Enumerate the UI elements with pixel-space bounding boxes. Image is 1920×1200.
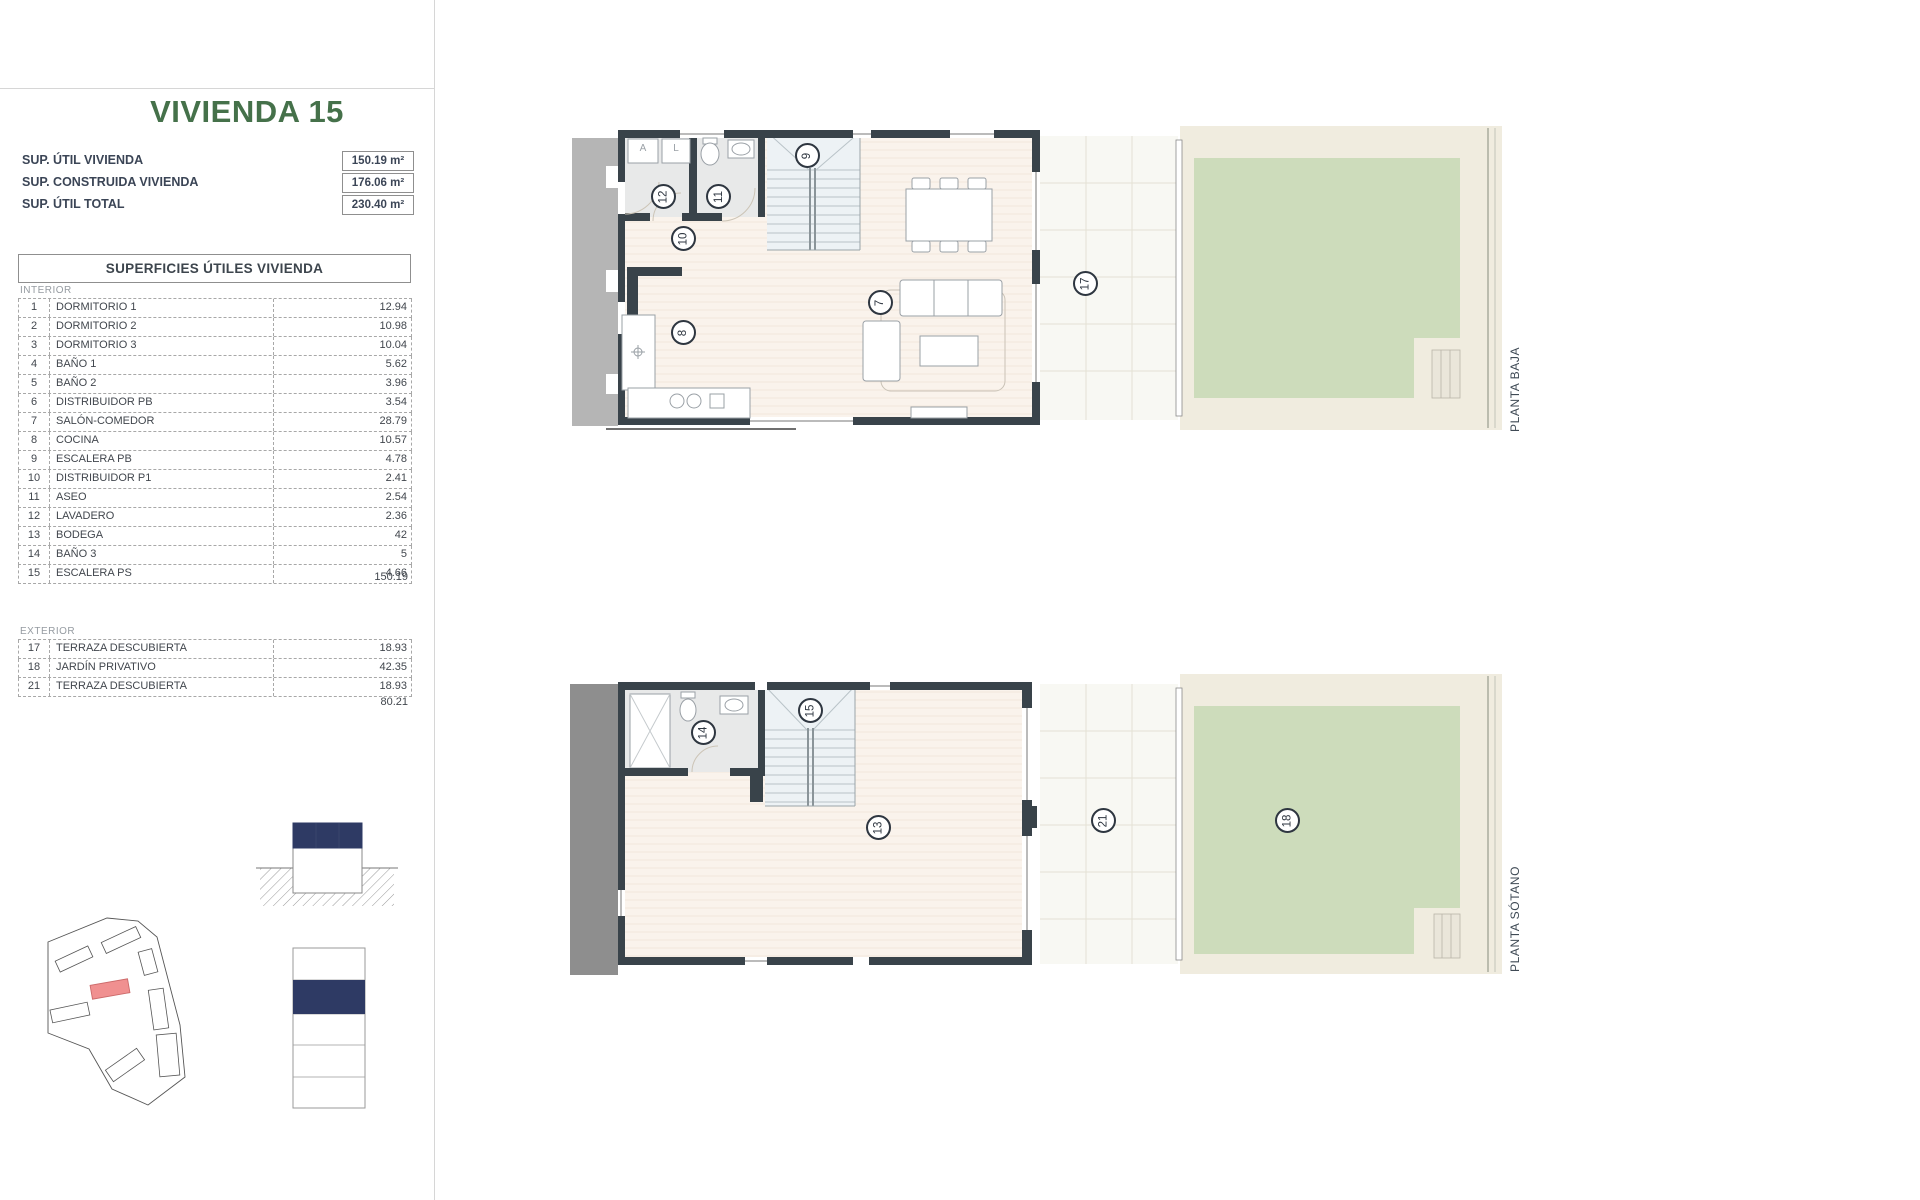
row-num: 6: [19, 394, 49, 412]
row-num: 12: [19, 508, 49, 526]
planta-sotano-label: PLANTA SÓTANO: [1508, 868, 1522, 972]
row-name: BODEGA: [49, 527, 273, 545]
planta-sotano-drawing: [570, 672, 1510, 975]
row-name: DISTRIBUIDOR PB: [49, 394, 273, 412]
exterior-section-label: EXTERIOR: [20, 626, 75, 637]
row-value: 3.96: [273, 375, 411, 393]
summary-row: SUP. ÚTIL VIVIENDA 150.19 m²: [22, 151, 414, 171]
summary-value: 230.40 m²: [342, 195, 414, 215]
room-marker: 17: [1073, 271, 1098, 296]
room-marker: 10: [671, 226, 696, 251]
row-name: DORMITORIO 2: [49, 318, 273, 336]
header-rule: [0, 88, 435, 89]
table-row: 17TERRAZA DESCUBIERTA18.93: [18, 640, 412, 659]
row-name: SALÓN-COMEDOR: [49, 413, 273, 431]
row-value: 2.36: [273, 508, 411, 526]
dining-set: [906, 178, 992, 252]
row-value: 5: [273, 546, 411, 564]
interior-areas-table: 1DORMITORIO 112.94 2DORMITORIO 210.98 3D…: [18, 298, 412, 584]
terrace-area: [1040, 136, 1182, 420]
row-num: 18: [19, 659, 49, 677]
planta-sotano-plan: 14 15 13 21 18: [570, 672, 1510, 975]
table-row: 11ASEO2.54: [18, 489, 412, 508]
row-num: 8: [19, 432, 49, 450]
row-name: BAÑO 1: [49, 356, 273, 374]
table-row: 8COCINA10.57: [18, 432, 412, 451]
summary-row: SUP. CONSTRUIDA VIVIENDA 176.06 m²: [22, 173, 414, 193]
row-num: 14: [19, 546, 49, 564]
row-value: 3.54: [273, 394, 411, 412]
row-name: BAÑO 2: [49, 375, 273, 393]
table-row: 9ESCALERA PB4.78: [18, 451, 412, 470]
table-row: 12LAVADERO2.36: [18, 508, 412, 527]
row-num: 21: [19, 678, 49, 696]
row-value: 42: [273, 527, 411, 545]
exterior-total: 80.21: [18, 696, 412, 708]
dryer-label: L: [669, 143, 683, 154]
summary-label: SUP. ÚTIL VIVIENDA: [22, 153, 143, 167]
section-level-diagram: [252, 808, 402, 913]
row-name: ASEO: [49, 489, 273, 507]
room-marker: 14: [691, 720, 716, 745]
room-marker: 12: [651, 184, 676, 209]
row-num: 10: [19, 470, 49, 488]
table-row: 1DORMITORIO 112.94: [18, 299, 412, 318]
sidebar-divider: [434, 0, 435, 1200]
row-name: DISTRIBUIDOR P1: [49, 470, 273, 488]
table-row: 18JARDÍN PRIVATIVO42.35: [18, 659, 412, 678]
row-name: DORMITORIO 3: [49, 337, 273, 355]
highlighted-level: [293, 980, 365, 1014]
room-marker: 11: [706, 184, 731, 209]
planta-baja-plan: 12 11 10 9 8 7 17 A L: [570, 122, 1510, 434]
row-name: COCINA: [49, 432, 273, 450]
row-num: 1: [19, 299, 49, 317]
row-num: 3: [19, 337, 49, 355]
washer-label: A: [636, 143, 650, 154]
garden-area: [1180, 674, 1502, 974]
row-value: 10.98: [273, 318, 411, 336]
party-wall-strip: [572, 138, 618, 426]
row-num: 17: [19, 640, 49, 658]
room-marker: 8: [671, 320, 696, 345]
exterior-areas-table: 17TERRAZA DESCUBIERTA18.93 18JARDÍN PRIV…: [18, 639, 412, 697]
row-name: ESCALERA PB: [49, 451, 273, 469]
row-value: 10.04: [273, 337, 411, 355]
highlighted-floor: [293, 823, 362, 848]
row-name: DORMITORIO 1: [49, 299, 273, 317]
row-value: 42.35: [273, 659, 411, 677]
row-name: BAÑO 3: [49, 546, 273, 564]
summary-row: SUP. ÚTIL TOTAL 230.40 m²: [22, 195, 414, 215]
row-num: 9: [19, 451, 49, 469]
summary-label: SUP. CONSTRUIDA VIVIENDA: [22, 175, 198, 189]
row-num: 11: [19, 489, 49, 507]
table-row: 14BAÑO 35: [18, 546, 412, 565]
planta-baja-label: PLANTA BAJA: [1508, 340, 1522, 432]
row-value: 18.93: [273, 640, 411, 658]
room-marker: 13: [866, 815, 891, 840]
row-name: LAVADERO: [49, 508, 273, 526]
summary-value: 150.19 m²: [342, 151, 414, 171]
row-num: 7: [19, 413, 49, 431]
row-value: 28.79: [273, 413, 411, 431]
areas-table-header: SUPERFICIES ÚTILES VIVIENDA: [18, 254, 411, 283]
table-row: 4BAÑO 15.62: [18, 356, 412, 375]
room-marker: 18: [1275, 808, 1300, 833]
room-marker: 9: [795, 143, 820, 168]
row-num: 5: [19, 375, 49, 393]
planta-baja-drawing: [570, 122, 1510, 434]
row-name: TERRAZA DESCUBIERTA: [49, 678, 273, 696]
interior-section-label: INTERIOR: [20, 285, 72, 296]
table-row: 2DORMITORIO 210.98: [18, 318, 412, 337]
table-row: 7SALÓN-COMEDOR28.79: [18, 413, 412, 432]
plan-sheet: VIVIENDA 15 SUP. ÚTIL VIVIENDA 150.19 m²…: [0, 0, 1920, 1200]
table-row: 21TERRAZA DESCUBIERTA18.93: [18, 678, 412, 697]
table-row: 6DISTRIBUIDOR PB3.54: [18, 394, 412, 413]
row-value: 10.57: [273, 432, 411, 450]
earth-strip: [570, 684, 618, 975]
summary-value: 176.06 m²: [342, 173, 414, 193]
row-value: 2.41: [273, 470, 411, 488]
summary-label: SUP. ÚTIL TOTAL: [22, 197, 125, 211]
table-row: 3DORMITORIO 310.04: [18, 337, 412, 356]
row-num: 2: [19, 318, 49, 336]
interior-total: 150.19: [18, 571, 412, 583]
row-value: 2.54: [273, 489, 411, 507]
row-value: 5.62: [273, 356, 411, 374]
room-marker: 15: [798, 698, 823, 723]
floor-stack-diagram: [291, 946, 367, 1110]
retaining-edge: [606, 428, 796, 430]
table-row: 5BAÑO 23.96: [18, 375, 412, 394]
site-plan-key: [35, 915, 225, 1130]
garden-area: [1180, 126, 1502, 430]
row-name: TERRAZA DESCUBIERTA: [49, 640, 273, 658]
row-value: 18.93: [273, 678, 411, 696]
row-num: 4: [19, 356, 49, 374]
table-row: 10DISTRIBUIDOR P12.41: [18, 470, 412, 489]
row-num: 13: [19, 527, 49, 545]
row-value: 4.78: [273, 451, 411, 469]
room-marker: 21: [1091, 808, 1116, 833]
row-value: 12.94: [273, 299, 411, 317]
page-title: VIVIENDA 15: [40, 94, 454, 130]
row-name: JARDÍN PRIVATIVO: [49, 659, 273, 677]
table-row: 13BODEGA42: [18, 527, 412, 546]
room-marker: 7: [868, 290, 893, 315]
